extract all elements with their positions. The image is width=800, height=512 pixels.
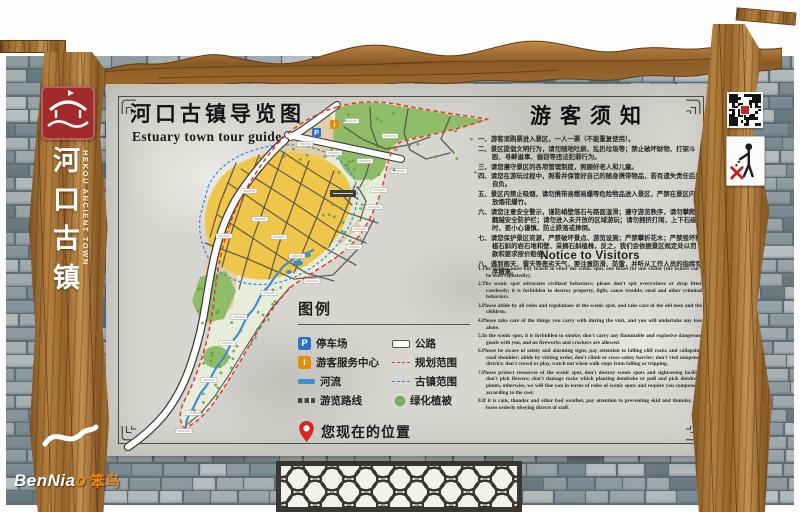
qr-center-logo (740, 105, 750, 115)
benniao-logo-en: BenNia (14, 471, 76, 491)
location-pin-icon (298, 420, 315, 443)
current-location-row: 您现在的位置 (298, 420, 480, 443)
notice-title-en: Notice to Visitors (478, 250, 702, 262)
notice-item-en: 2.The scenic spot advocates civilized be… (478, 281, 702, 301)
legend-label: 公路 (415, 336, 436, 351)
legend-label: 规划范围 (415, 355, 457, 370)
road-swatch (392, 340, 410, 348)
notice-item-cn: 三、请您遵守景区的各项管理制度，照顾好老人和儿童。 (478, 164, 702, 172)
notice-title-cn: 游客须知 (478, 100, 702, 130)
lattice-window (276, 461, 522, 512)
benniao-logo: BenNia o 笨鸟 (14, 470, 120, 491)
river-swoosh-icon (39, 422, 99, 452)
notice-item-cn: 二、景区提倡文明行为，请勿随地吐痰、乱扔垃圾等；禁止破坏财物、打架斗殴、寻衅滋事… (478, 146, 702, 162)
panel-title: 河口古镇导览图 Estuary town tour guide (130, 98, 305, 145)
parking-icon: P (298, 337, 311, 350)
svg-text:i: i (334, 122, 336, 129)
tour-panel: 河口古镇导览图 Estuary town tour guide (106, 84, 716, 456)
legend: 图例 P停车场 i游客服务中心 河流 游览路线 公路 规划范围 古镇范围 绿化植… (298, 298, 480, 443)
vegetation-swatch (395, 396, 405, 406)
wood-beam-right (736, 7, 797, 25)
qr-code (727, 92, 763, 128)
plank-title-cn: 河口古镇 (45, 146, 84, 302)
visitor-center-icon: i (298, 356, 311, 369)
seal-logo (41, 86, 95, 140)
legend-title: 图例 (298, 298, 470, 325)
svg-text:P: P (314, 130, 319, 137)
legend-label: 绿化植被 (410, 393, 452, 408)
notice-item-en: 7.Please protect resources of the scenic… (478, 370, 702, 396)
no-littering-icon (727, 137, 762, 183)
notice-item-en: 3.Please abide by all rules and regulati… (478, 303, 702, 316)
plank-title-en: HEKOU ANCIENT TOWN (81, 150, 90, 266)
fret-corner-icon (121, 425, 137, 441)
legend-label: 停车场 (316, 336, 348, 351)
river-swatch (298, 379, 315, 384)
page-title: 河口古镇导览图 (130, 98, 305, 128)
notice-item-en: 4.Please take care of the things you car… (478, 318, 702, 331)
notice-section-en: Notice to Visitors 1.The visitors must b… (478, 250, 702, 413)
benniao-logo-o: o (76, 471, 86, 491)
page-subtitle: Estuary town tour guide (132, 129, 305, 145)
name-plank: 河口古镇 HEKOU ANCIENT TOWN (28, 52, 110, 512)
notice-item-en: 5.In the scenic spot, it is forbidden to… (478, 333, 702, 346)
current-location-label: 您现在的位置 (321, 422, 411, 442)
legend-label: 游客服务中心 (316, 355, 379, 370)
route-swatch (298, 398, 315, 403)
town-boundary-swatch (392, 381, 410, 382)
no-littering-sign (726, 136, 765, 186)
top-branch (78, 34, 782, 88)
notice-item-en: 8.If it is rain, thunder and other bad w… (478, 398, 702, 411)
notice-item-cn: 六、请您注意安全警示，谨防峭壁落石与路面湿滑；遵守游览秩序，请勿攀爬、翻越安全防… (478, 209, 702, 233)
notice-item-en: 1.The visitors must buy tickets to enter… (478, 266, 702, 279)
planning-boundary-swatch (392, 362, 410, 363)
benniao-logo-cn: 笨鸟 (90, 470, 120, 491)
seal-art-icon (41, 86, 95, 140)
notice-item-cn: 四、请您在游玩过程中，照看并保管好自己的随身携带物品，若有遗失责任后果自负。 (478, 173, 702, 189)
wood-beam-left (0, 40, 66, 53)
map-info-marker: i (330, 120, 339, 129)
map-parking-marker: P (312, 128, 321, 137)
legend-label: 游览路线 (320, 393, 362, 408)
notice-item-cn: 一、游客须购票进入景区，一人一票（不能重复使用）。 (478, 136, 702, 144)
notice-item-en: 6.Please be aware of safety and alarming… (478, 348, 702, 368)
legend-label: 古镇范围 (415, 374, 457, 389)
legend-label: 河流 (320, 374, 341, 389)
notice-item-cn: 五、景区内禁止吸烟，请勿携带易燃易爆等危险物品进入景区，严禁在景区内燃放烟花爆竹… (478, 191, 702, 207)
